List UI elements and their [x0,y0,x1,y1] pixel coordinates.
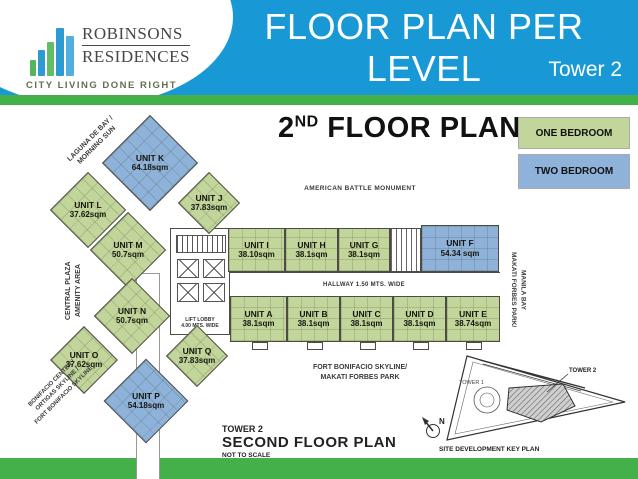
unit-area: 38.1sqm [297,319,329,329]
elevator-icon [177,283,199,302]
unit-area: 37.62sqm [70,210,106,220]
elevator-icon [177,259,199,278]
key-plan-sketch: TOWER 2 TOWER 1 [425,352,635,444]
unit-area: 50.7sqm [116,316,148,326]
unit-label-E: UNIT E38.74sqm [446,296,500,342]
balcony [252,342,268,350]
unit-P: UNIT P54.18sqm [116,371,176,431]
unit-area: 64.18sqm [132,163,168,173]
label-fort-bonifacio-skyline: FORT BONIFACIO SKYLINE/ MAKATI FORBES PA… [290,363,430,383]
header-banner: FLOOR PLAN PER LEVEL Tower 2 ROBINSONS R… [0,0,638,95]
unit-name: UNIT J [196,193,223,204]
unit-E: UNIT E38.74sqm [446,296,500,342]
unit-name: UNIT I [244,240,269,251]
hallway-corridor: HALLWAY 1.50 MTS. WIDE [228,272,500,298]
unit-H: UNIT H38.1sqm [285,228,338,272]
unit-name: UNIT D [405,309,433,320]
label-makati-forbes-park: MAKATI FORBES PARK/ MANILA BAY [508,240,528,340]
unit-A: UNIT A38.1sqm [230,296,287,342]
balcony [413,342,429,350]
unit-name: UNIT P [132,391,160,402]
balcony [307,342,323,350]
unit-area: 54.18sqm [128,401,164,411]
unit-name: UNIT N [118,306,146,317]
unit-area: 37.83sqm [179,356,215,366]
unit-K: UNIT K64.18sqm [116,129,184,197]
unit-I: UNIT I38.10sqm [228,228,285,272]
unit-area: 38.1sqm [350,319,382,329]
unit-C: UNIT C38.1sqm [340,296,393,342]
unit-label-N: UNIT N50.7sqm [105,289,159,343]
unit-label-B: UNIT B38.1sqm [287,296,340,342]
key-plan-caption: SITE DEVELOPMENT KEY PLAN [439,446,539,453]
unit-area: 38.1sqm [403,319,435,329]
brand-line2: RESIDENCES [82,47,190,67]
unit-area: 37.83sqm [191,203,227,213]
unit-area: 38.1sqm [348,250,380,260]
label-central-plaza: CENTRAL PLAZA AMENITY AREA [64,248,84,334]
unit-label-C: UNIT C38.1sqm [340,296,393,342]
unit-label-J: UNIT J37.83sqm [187,181,231,225]
key-plan-tower1-label: TOWER 1 [459,380,484,386]
tower-subtitle: Tower 2 [548,58,622,82]
footer-plan-name: SECOND FLOOR PLAN [222,434,396,451]
unit-label-A: UNIT A38.1sqm [230,296,287,342]
brand-tagline: CITY LIVING DONE RIGHT [26,80,177,91]
green-divider-top [0,95,638,105]
lift-lobby-core: LIFT LOBBY 4.00 MTS. WIDE [170,228,230,335]
skyline-buildings-icon [30,26,76,76]
label-american-battle-monument: AMERICAN BATTLE MONUMENT [290,185,430,192]
unit-label-G: UNIT G38.1sqm [338,228,390,272]
balcony [466,342,482,350]
unit-label-Q: UNIT Q37.83sqm [175,334,219,378]
unit-label-K: UNIT K64.18sqm [116,129,184,197]
elevator-icon [203,283,225,302]
unit-label-F: UNIT F54.34 sqm [421,225,499,272]
unit-name: UNIT E [459,309,487,320]
unit-area: 54.34 sqm [441,249,480,259]
unit-name: UNIT C [352,309,380,320]
unit-J: UNIT J37.83sqm [187,181,231,225]
unit-name: UNIT L [74,200,101,211]
green-divider-bottom [0,458,638,479]
site-key-plan: TOWER 2 TOWER 1 SITE DEVELOPMENT KEY PLA… [425,352,635,456]
unit-N: UNIT N50.7sqm [105,289,159,343]
unit-name: UNIT B [299,309,327,320]
slide: FLOOR PLAN PER LEVEL Tower 2 ROBINSONS R… [0,0,638,479]
unit-name: UNIT Q [183,346,212,357]
unit-name: UNIT K [136,153,164,164]
unit-label-D: UNIT D38.1sqm [393,296,446,342]
unit-name: UNIT M [113,240,142,251]
unit-area: 38.1sqm [242,319,274,329]
footer-scale-note: NOT TO SCALE [222,452,396,459]
brand-name: ROBINSONS RESIDENCES [82,24,190,67]
stair-core [390,228,421,272]
unit-name: UNIT A [244,309,272,320]
unit-area: 38.74sqm [455,319,491,329]
unit-area: 38.10sqm [238,250,274,260]
brand-line1: ROBINSONS [82,24,190,46]
hallway-label: HALLWAY 1.50 MTS. WIDE [323,282,405,288]
unit-area: 38.1sqm [295,250,327,260]
north-label: N [439,417,445,426]
stairs-icon [176,235,226,253]
unit-label-I: UNIT I38.10sqm [228,228,285,272]
unit-F: UNIT F54.34 sqm [421,225,499,272]
elevator-icon [203,259,225,278]
key-plan-tower2-label: TOWER 2 [569,368,597,374]
balcony [360,342,376,350]
unit-area: 50.7sqm [112,250,144,260]
unit-name: UNIT G [350,240,379,251]
unit-label-P: UNIT P54.18sqm [116,371,176,431]
unit-label-M: UNIT M50.7sqm [101,223,155,277]
north-arrow: N [419,414,449,444]
unit-Q: UNIT Q37.83sqm [175,334,219,378]
unit-M: UNIT M50.7sqm [101,223,155,277]
unit-name: UNIT F [446,238,473,249]
footer-tower: TOWER 2 [222,424,396,434]
unit-D: UNIT D38.1sqm [393,296,446,342]
unit-name: UNIT H [297,240,325,251]
unit-B: UNIT B38.1sqm [287,296,340,342]
plan-footer: TOWER 2 SECOND FLOOR PLAN NOT TO SCALE [222,424,396,459]
unit-label-H: UNIT H38.1sqm [285,228,338,272]
unit-G: UNIT G38.1sqm [338,228,390,272]
robinsons-residences-logo: ROBINSONS RESIDENCES CITY LIVING DONE RI… [24,18,214,90]
